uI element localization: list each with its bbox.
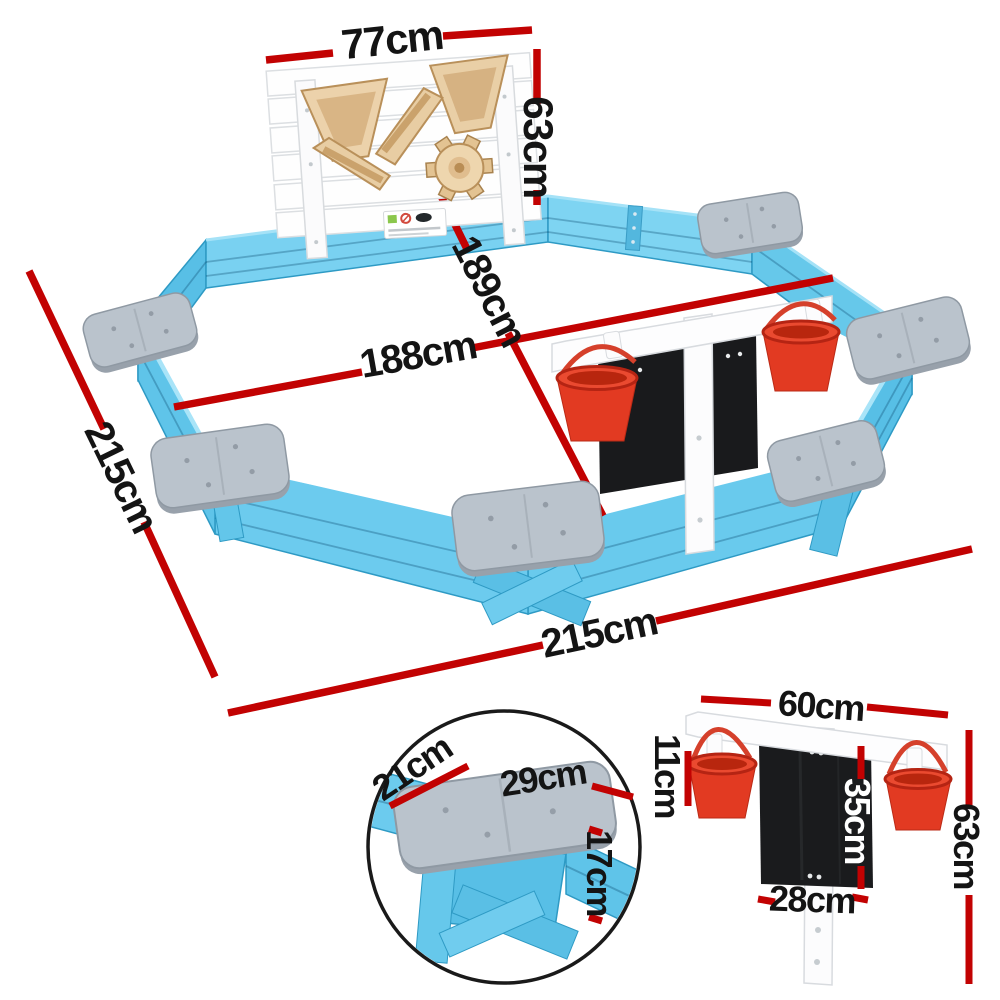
dim-line-panel-width (443, 30, 532, 36)
dim-label-wall-height: 17cm (581, 830, 617, 916)
accessory-detail (686, 699, 969, 985)
dim-line-side-length (144, 522, 215, 677)
dim-line-panel-width (266, 53, 333, 60)
wall-batten (625, 206, 642, 251)
dim-label-board-height: 35cm (839, 778, 875, 864)
dim-label-rail-width: 60cm (777, 685, 865, 727)
product-dimension-image: 77cm 63cm 189cm 188cm 215cm 215cm 21cm 2… (0, 0, 1000, 1000)
wall-sticker (383, 208, 446, 238)
dim-label-panel-width: 77cm (339, 14, 444, 66)
dim-line-overall-width (228, 645, 543, 713)
dim-label-panel-height: 63cm (517, 96, 559, 197)
dim-label-overall-height: 63cm (948, 803, 984, 889)
dim-label-bucket-height: 11cm (649, 734, 685, 818)
dim-label-board-width: 28cm (768, 881, 855, 920)
